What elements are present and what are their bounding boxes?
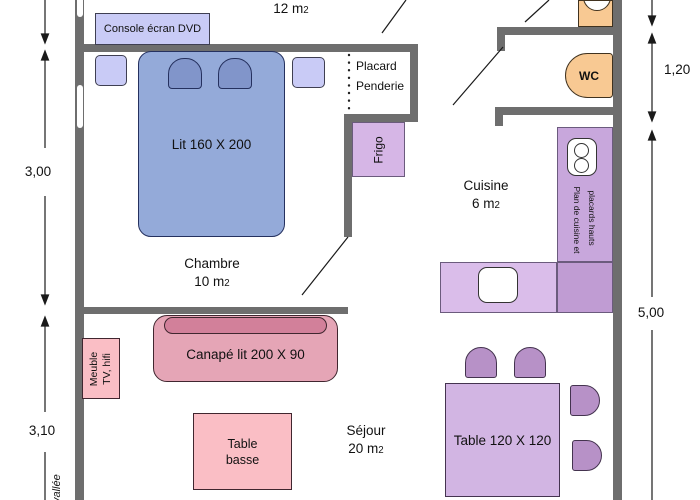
- fridge: Frigo: [352, 122, 405, 177]
- chair-right-lower: [572, 440, 602, 471]
- chair-right-upper: [570, 385, 600, 416]
- sofa-label: Canapé lit 200 X 90: [186, 347, 305, 362]
- wc-label: WC: [579, 69, 599, 83]
- kitchen-sink: [478, 267, 518, 303]
- kitchen-plan-label-col1: Plan de cuisine et: [572, 186, 582, 253]
- chair-top-right: [514, 347, 546, 378]
- door-swing-wc: [453, 47, 503, 105]
- wall-placard-bottom: [344, 114, 418, 122]
- bed: Lit 160 X 200: [138, 51, 285, 237]
- door-swing-chambre: [302, 237, 348, 295]
- window-slot-top: [77, 0, 83, 17]
- wall-wc-bottom-bracket: [495, 107, 503, 126]
- bed-label: Lit 160 X 200: [172, 137, 252, 152]
- closet-label: Placard Penderie: [356, 56, 404, 96]
- coffee-table: Table basse: [193, 413, 292, 490]
- sofa-backrest: [164, 317, 327, 334]
- dining-table-label: Table 120 X 120: [454, 433, 552, 448]
- console-dvd-label: Console écran DVD: [104, 23, 201, 35]
- dimension-left-upper-label: 3,00: [25, 164, 51, 179]
- door-swing-entry-right: [525, 0, 549, 22]
- tv-unit: Meuble TV, hifi: [82, 338, 120, 399]
- wall-chambre-sejour-divider: [78, 307, 348, 314]
- tv-unit-label: Meuble TV, hifi: [88, 351, 114, 385]
- dining-table: Table 120 X 120: [445, 383, 560, 497]
- wall-placard-right: [410, 44, 418, 122]
- dimension-right-upper-label: 1,20: [664, 62, 690, 77]
- pillow-left: [168, 58, 202, 89]
- kitchen-plan-label-col2: placards hauts: [587, 190, 597, 245]
- wall-cuisine-left: [344, 114, 352, 237]
- cooktop-burner-bottom: [574, 158, 589, 173]
- nightstand-right: [292, 57, 325, 88]
- door-swing-entry-left: [382, 0, 406, 33]
- wall-wc-top-bracket: [497, 27, 505, 51]
- wall-wc-top: [497, 27, 613, 35]
- washbasin: [578, 0, 613, 27]
- living-room-label: Séjour 20 m2: [346, 422, 385, 460]
- dimension-right-lower-label: 5,00: [638, 305, 664, 320]
- bedroom-label: Chambre 10 m2: [184, 255, 240, 293]
- toilet: WC: [565, 53, 613, 98]
- floor-plan: Console écran DVD Lit 160 X 200 Frigo WC…: [0, 0, 700, 500]
- fridge-label: Frigo: [372, 136, 386, 163]
- dimension-left-lower-arrow: [42, 317, 49, 500]
- kitchen-label: Cuisine 6 m2: [463, 177, 508, 215]
- dimension-left-lower-label: 3,10: [29, 423, 55, 438]
- wall-left-exterior: [75, 0, 84, 500]
- chair-top-left: [465, 347, 497, 378]
- wall-right-exterior: [613, 0, 622, 500]
- valley-annotation: vallée: [51, 474, 63, 500]
- nightstand-left: [95, 55, 127, 86]
- top-room-area-label: 12 m2: [273, 1, 308, 16]
- coffee-table-label: Table basse: [226, 436, 259, 468]
- wall-wc-bottom: [495, 107, 613, 115]
- kitchen-counter-corner: [557, 262, 613, 313]
- pillow-right: [218, 58, 252, 89]
- cooktop-burner-top: [574, 143, 589, 158]
- dimension-left-upper-arrow: [42, 0, 49, 304]
- dimension-right-upper-arrow: [649, 0, 656, 121]
- washbasin-bowl: [583, 0, 611, 11]
- window-slot-middle: [77, 85, 83, 128]
- console-dvd-unit: Console écran DVD: [95, 13, 210, 45]
